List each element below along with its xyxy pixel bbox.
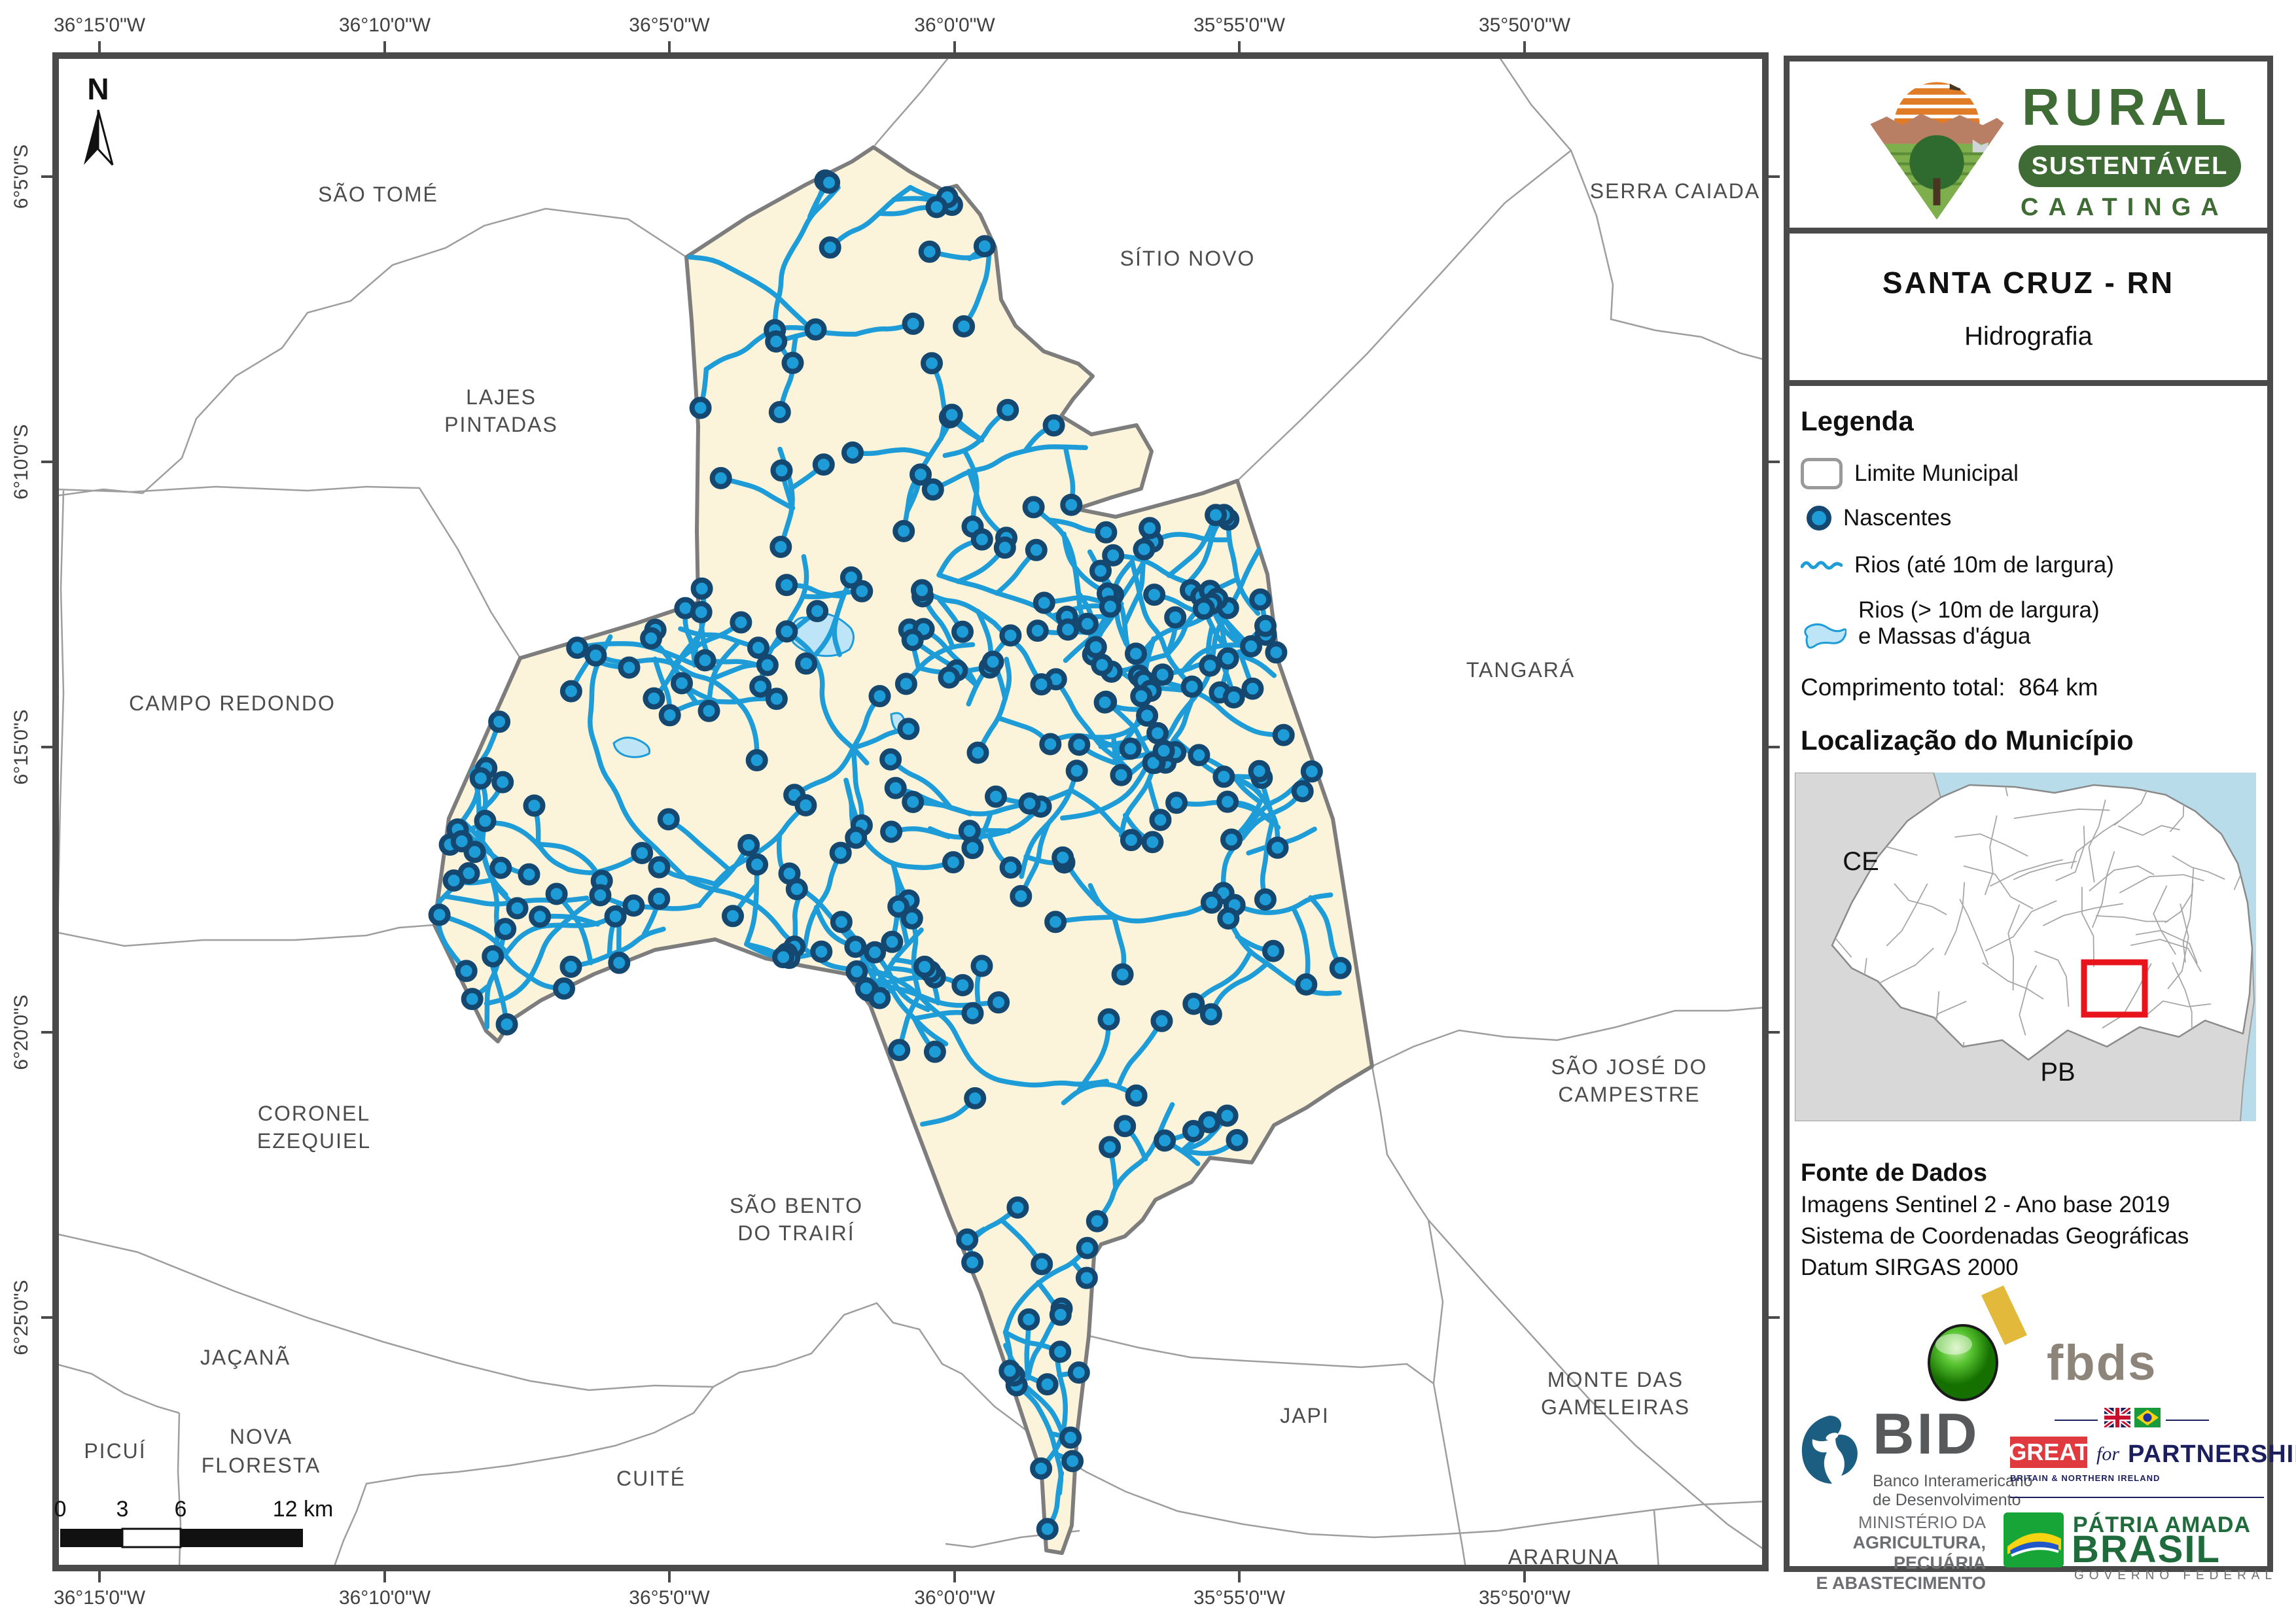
spring-dot <box>976 237 993 254</box>
logo-sustentavel-badge: SUSTENTÁVEL <box>2019 145 2241 187</box>
legend-item-label: Rios (> 10m de largura) <box>1858 597 2100 623</box>
spring-dot <box>1226 689 1243 706</box>
ministry-block: MINISTÉRIO DA AGRICULTURA, PECUÁRIA E AB… <box>1812 1512 1986 1594</box>
page: SÃO TOMÉSÍTIO NOVOSERRA CAIADALAJESPINTA… <box>0 0 2296 1623</box>
spring-dot <box>569 639 586 656</box>
spring-dot <box>964 1254 981 1271</box>
spring-dot <box>556 980 573 997</box>
legend-header: Legenda <box>1801 406 1914 437</box>
spring-dot <box>1219 1108 1236 1125</box>
great-subtext: BRITAIN & NORTHERN IRELAND <box>2010 1473 2160 1483</box>
spring-dot <box>1144 833 1161 850</box>
spring-dot <box>970 744 987 761</box>
spring-dot <box>788 881 805 898</box>
spring-dot <box>1127 645 1144 662</box>
legend-item-nascentes: Nascentes <box>1801 505 1951 531</box>
spring-dot <box>1101 1139 1118 1156</box>
nascentes-icon <box>1807 506 1831 531</box>
spring-dot <box>1133 688 1150 705</box>
spring-dot <box>1149 725 1166 742</box>
spring-dot <box>882 751 899 768</box>
spring-dot <box>1097 524 1114 541</box>
longitude-label-bottom: 35°50'0"W <box>1479 1587 1571 1609</box>
spring-dot <box>1167 609 1184 626</box>
brasil-government-flag-icon <box>2004 1512 2064 1567</box>
spring-dot <box>1207 506 1224 523</box>
spring-dot <box>944 406 961 423</box>
spring-dot <box>1251 763 1268 780</box>
spring-dot <box>1195 600 1212 617</box>
spring-dot <box>928 199 945 216</box>
spring-dot <box>813 943 830 960</box>
location-header: Localização do Município <box>1801 725 2134 756</box>
spring-dot <box>1219 794 1236 811</box>
spring-dot <box>693 604 710 621</box>
spring-dot <box>1039 1376 1056 1393</box>
water-mass-icon <box>1801 592 1846 655</box>
municipality-label: SÃO TOMÉ <box>318 183 438 206</box>
spring-dot <box>1029 622 1046 639</box>
spring-dot <box>974 531 991 548</box>
spring-dot <box>847 938 864 955</box>
total-length-label: Comprimento total: <box>1801 674 2005 701</box>
spring-dot <box>497 920 514 937</box>
spring-dot <box>1070 1364 1087 1381</box>
spring-dot <box>521 866 538 883</box>
spring-dot <box>1303 763 1320 780</box>
spring-dot <box>887 780 904 797</box>
spring-dot <box>645 690 662 707</box>
spring-dot <box>1190 746 1207 763</box>
brasil-text: BRASIL <box>2072 1533 2221 1565</box>
spring-dot <box>1002 627 1019 644</box>
spring-dot <box>1051 1343 1069 1360</box>
spring-dot <box>891 1041 908 1058</box>
spring-dot <box>1020 1311 1037 1328</box>
inset-ce-label: CE <box>1843 847 1879 876</box>
spring-dot <box>872 688 889 705</box>
spring-dot <box>732 614 749 631</box>
ministry-line: AGRICULTURA, PECUÁRIA <box>1812 1533 1986 1573</box>
bid-logo-text: BID <box>1873 1408 1980 1459</box>
spring-dot <box>1116 1117 1133 1134</box>
spring-dot <box>768 690 785 707</box>
spring-dot <box>472 770 489 787</box>
state-locator-inset-map: CEPB <box>1795 773 2256 1121</box>
spring-dot <box>431 906 448 923</box>
spring-dot <box>1102 598 1119 615</box>
spring-dot <box>848 963 865 980</box>
spring-dot <box>1168 794 1185 811</box>
spring-dot <box>492 860 509 877</box>
spring-dot <box>809 602 826 620</box>
governo-federal-text: GOVERNO FEDERAL <box>2074 1569 2277 1583</box>
spring-dot <box>797 797 814 814</box>
legend-item-rios: Rios (até 10m de largura) <box>1801 552 2114 578</box>
spring-dot <box>633 845 650 862</box>
spring-dot <box>941 669 958 686</box>
scale-label: 12 km <box>273 1497 334 1522</box>
spring-dot <box>1087 638 1104 655</box>
spring-dot <box>464 990 481 1007</box>
fbds-logo-icon <box>1924 1279 2041 1410</box>
great-flag-line-right <box>2166 1420 2209 1421</box>
spring-dot <box>997 539 1014 556</box>
spring-dot <box>1101 1011 1118 1028</box>
spring-dot <box>1128 1087 1145 1104</box>
spring-dot <box>904 794 921 811</box>
spring-dot <box>1025 498 1042 515</box>
longitude-label-bottom: 36°15'0"W <box>54 1587 146 1609</box>
spring-dot <box>1033 1460 1050 1477</box>
latitude-label-left: 6°5'0"S <box>10 145 32 209</box>
spring-dot <box>610 954 627 971</box>
spring-dot <box>484 948 501 965</box>
spring-dot <box>1201 657 1218 674</box>
source-header: Fonte de Dados <box>1801 1159 1987 1187</box>
spring-dot <box>1036 595 1053 612</box>
spring-dot <box>961 822 978 839</box>
spring-dot <box>990 994 1007 1011</box>
spring-dot <box>772 538 789 555</box>
spring-dot <box>1294 783 1311 800</box>
spring-dot <box>1267 644 1284 661</box>
spring-dot <box>1156 1132 1173 1149</box>
bid-name: Banco Interamericano de Desenvolvimento <box>1873 1472 2033 1510</box>
spring-dot <box>853 583 870 600</box>
spring-dot <box>477 812 494 829</box>
total-length-row: Comprimento total: 864 km <box>1801 674 2098 701</box>
spring-dot <box>785 355 802 372</box>
spring-dot <box>1185 996 1202 1013</box>
spring-dot <box>1139 707 1156 724</box>
spring-dot <box>752 678 769 695</box>
spring-dot <box>1215 768 1232 785</box>
logo-rural-text: RURAL <box>2022 77 2231 137</box>
spring-dot <box>1136 541 1153 558</box>
spring-dot <box>494 774 511 791</box>
spring-dot <box>548 886 565 903</box>
scale-seg <box>122 1529 181 1547</box>
scale-seg <box>181 1529 303 1547</box>
spring-dot <box>945 854 962 871</box>
spring-dot <box>749 856 766 873</box>
inset-pb-label: PB <box>2040 1058 2075 1087</box>
spring-dot <box>921 243 938 260</box>
spring-dot <box>807 321 824 338</box>
spring-dot <box>1146 586 1163 603</box>
map-subtitle: Hidrografia <box>1793 322 2264 351</box>
spring-dot <box>1059 621 1076 638</box>
longitude-label-top: 35°50'0"W <box>1479 14 1571 36</box>
spring-dot <box>1201 1114 1218 1131</box>
spring-dot <box>673 674 690 691</box>
legend-item-limite: Limite Municipal <box>1801 458 2019 489</box>
spring-dot <box>999 402 1016 419</box>
spring-dot <box>1054 849 1071 866</box>
spring-dot <box>905 315 922 332</box>
spring-dot <box>1042 736 1059 753</box>
spring-dot <box>1229 1132 1246 1149</box>
spring-dot <box>895 523 912 540</box>
spring-dot <box>1265 943 1282 960</box>
spring-dot <box>531 908 548 925</box>
north-label: N <box>87 72 109 106</box>
spring-dot <box>453 833 470 850</box>
spring-dot <box>1079 1240 1096 1257</box>
spring-dot <box>1063 497 1080 514</box>
brazil-flag-icon <box>2134 1408 2161 1427</box>
spring-dot <box>844 444 861 461</box>
rural-sustentavel-caatinga-logo-icon <box>1865 71 2009 221</box>
spring-dot <box>1223 831 1240 848</box>
longitude-label-top: 36°15'0"W <box>54 14 146 36</box>
spring-dot <box>1113 767 1130 784</box>
spring-dot <box>1078 1270 1095 1287</box>
spring-dot <box>1001 1363 1018 1380</box>
spring-dot <box>866 944 883 961</box>
spring-dot <box>1156 742 1173 759</box>
spring-dot <box>923 355 940 372</box>
logo-caatinga-text: CAATINGA <box>2021 194 2229 222</box>
spring-dot <box>1257 891 1274 908</box>
map-municipality-title: SANTA CRUZ - RN <box>1793 265 2264 300</box>
spring-dot <box>650 859 667 876</box>
spring-dot <box>621 659 638 676</box>
longitude-label-top: 36°10'0"W <box>339 14 431 36</box>
spring-dot <box>446 872 463 889</box>
spring-dot <box>1047 913 1064 930</box>
bid-logo-icon <box>1798 1413 1863 1486</box>
spring-dot <box>1033 676 1050 693</box>
ministry-line: MINISTÉRIO DA <box>1812 1512 1986 1533</box>
spring-dot <box>662 707 679 724</box>
great-flag-line-left <box>2055 1420 2098 1421</box>
spring-dot <box>1089 1213 1106 1230</box>
spring-dot <box>1092 563 1109 580</box>
scale-label: 0 <box>54 1497 67 1522</box>
source-line: Datum SIRGAS 2000 <box>1801 1255 2019 1281</box>
longitude-label-bottom: 36°5'0"W <box>629 1587 710 1609</box>
scale-label: 3 <box>116 1497 129 1522</box>
spring-dot <box>925 481 942 498</box>
great-logo-box: GREAT <box>2010 1437 2087 1468</box>
spring-dot <box>592 887 609 904</box>
spring-dot <box>916 958 933 975</box>
spring-dot <box>1269 839 1286 856</box>
spring-dot <box>1203 894 1220 911</box>
longitude-label-top: 35°55'0"W <box>1193 14 1286 36</box>
spring-dot <box>898 675 915 692</box>
spring-dot <box>701 703 718 720</box>
longitude-label-bottom: 35°55'0"W <box>1193 1587 1286 1609</box>
longitude-label-top: 36°5'0"W <box>629 14 710 36</box>
spring-dot <box>954 623 971 640</box>
spring-dot <box>1275 727 1292 744</box>
uk-flag-icon <box>2104 1408 2130 1427</box>
spring-dot <box>778 623 795 640</box>
title-panel <box>1784 228 2273 386</box>
spring-dot <box>832 845 849 862</box>
spring-dot <box>1332 960 1349 977</box>
scale-seg <box>60 1529 122 1547</box>
spring-dot <box>458 962 475 979</box>
spring-dot <box>964 1005 981 1022</box>
latitude-label-left: 6°20'0"S <box>10 994 32 1070</box>
spring-dot <box>900 720 917 737</box>
spring-dot <box>959 1231 976 1248</box>
spring-dot <box>954 977 971 994</box>
bid-name-line2: de Desenvolvimento <box>1873 1491 2033 1510</box>
spring-dot <box>1141 519 1158 536</box>
spring-dot <box>759 657 776 674</box>
spring-dot <box>815 456 832 473</box>
spring-dot <box>964 839 981 856</box>
spring-dot <box>833 913 850 930</box>
spring-dot <box>771 404 788 421</box>
spring-dot <box>1220 910 1237 927</box>
municipality-label: CUITÉ <box>616 1467 686 1490</box>
source-line: Imagens Sentinel 2 - Ano base 2019 <box>1801 1192 2170 1218</box>
spring-dot <box>987 788 1004 805</box>
legend-item-massas: Rios (> 10m de largura) e Massas d'água <box>1801 592 2100 655</box>
spring-dot <box>713 470 730 487</box>
ministry-line: E ABASTECIMENTO <box>1812 1573 1986 1594</box>
spring-dot <box>1046 417 1063 434</box>
spring-dot <box>798 655 815 672</box>
spring-dot <box>1069 762 1086 779</box>
municipality-label: CAMPO REDONDO <box>129 691 336 715</box>
spring-dot <box>660 811 677 828</box>
spring-dot <box>1154 666 1171 683</box>
spring-dot <box>643 630 660 647</box>
spring-dot <box>509 899 526 916</box>
spring-dot <box>563 958 580 975</box>
total-length-value: 864 km <box>2019 674 2098 701</box>
spring-dot <box>871 990 888 1007</box>
spring-dot <box>904 631 921 648</box>
municipality-label: JAÇANÃ <box>200 1346 291 1369</box>
spring-dot <box>692 400 709 417</box>
spring-dot <box>1298 976 1315 993</box>
spring-dot <box>1104 547 1122 564</box>
spring-dot <box>1028 542 1045 559</box>
legend-item-label: Nascentes <box>1843 505 1951 531</box>
spring-dot <box>847 829 864 846</box>
spring-dot <box>1033 1255 1050 1272</box>
legend-item-label: Limite Municipal <box>1854 461 2019 487</box>
latitude-label-left: 6°15'0"S <box>10 709 32 784</box>
spring-dot <box>1012 888 1029 905</box>
spring-dot <box>607 908 624 925</box>
municipality-label: TANGARÁ <box>1466 658 1575 682</box>
spring-dot <box>1097 694 1114 711</box>
spring-dot <box>1064 1453 1081 1470</box>
spring-dot <box>1052 1306 1069 1323</box>
great-underline <box>2010 1497 2264 1498</box>
spring-dot <box>822 239 839 256</box>
bid-name-line1: Banco Interamericano <box>1873 1472 2033 1491</box>
spring-dot <box>694 580 711 597</box>
latitude-label-left: 6°25'0"S <box>10 1280 32 1355</box>
latitude-label-left: 6°10'0"S <box>10 424 32 499</box>
spring-dot <box>650 890 667 907</box>
spring-dot <box>1114 966 1131 983</box>
great-for-text: for <box>2096 1443 2119 1465</box>
spring-dot <box>927 1043 944 1060</box>
spring-dot <box>740 837 757 854</box>
spring-dot <box>913 582 930 599</box>
spring-dot <box>1252 591 1269 608</box>
longitude-label-bottom: 36°0'0"W <box>914 1587 995 1609</box>
spring-dot <box>491 713 508 730</box>
spring-dot <box>1009 1199 1026 1216</box>
spring-dot <box>1093 656 1110 673</box>
spring-dot <box>773 462 790 479</box>
spring-dot <box>499 1016 516 1033</box>
spring-dot <box>821 174 838 191</box>
longitude-label-bottom: 36°10'0"W <box>339 1587 431 1609</box>
spring-dot <box>697 652 714 669</box>
spring-dot <box>985 654 1002 671</box>
spring-dot <box>966 1090 983 1107</box>
municipality-label: JAPI <box>1280 1404 1330 1427</box>
limite-municipal-icon <box>1801 458 1843 489</box>
spring-dot <box>1062 1429 1079 1446</box>
legend-item-label: Rios (até 10m de largura) <box>1854 552 2114 578</box>
spring-dot <box>625 897 642 914</box>
spring-dot <box>1257 618 1274 635</box>
spring-dot <box>904 910 921 927</box>
spring-dot <box>883 824 900 841</box>
municipality-label: SERRA CAIADA <box>1590 179 1761 203</box>
legend-item-label2: e Massas d'água <box>1858 623 2100 650</box>
scale-label: 6 <box>175 1497 187 1522</box>
spring-dot <box>1203 1006 1220 1023</box>
spring-dot <box>1122 741 1139 758</box>
longitude-label-top: 36°0'0"W <box>914 14 995 36</box>
spring-dot <box>768 333 785 350</box>
spring-dot <box>1039 1520 1056 1537</box>
spring-dot <box>1152 811 1169 828</box>
spring-dot <box>749 752 766 769</box>
municipality-label: SÍTIO NOVO <box>1120 247 1256 270</box>
spring-dot <box>587 647 604 664</box>
spring-dot <box>778 576 795 593</box>
spring-dot <box>883 934 900 951</box>
spring-dot <box>1243 638 1260 655</box>
spring-dot <box>1123 831 1140 848</box>
spring-dot <box>1070 736 1087 753</box>
spring-dot <box>1184 678 1201 695</box>
spring-dot <box>724 907 741 924</box>
spring-dot <box>1002 859 1019 876</box>
municipality-label: PICUÍ <box>84 1439 146 1463</box>
spring-dot <box>974 958 991 975</box>
spring-dot <box>563 683 580 700</box>
great-partnership-text: PARTNERSHIP <box>2128 1440 2296 1469</box>
spring-dot <box>955 318 972 335</box>
spring-dot <box>1079 616 1096 633</box>
spring-dot <box>1220 650 1237 667</box>
spring-dot <box>526 797 543 814</box>
spring-dot <box>1021 795 1038 812</box>
spring-dot <box>1154 1013 1171 1030</box>
fbds-logo-text: fbds <box>2047 1335 2157 1391</box>
river-line-icon <box>1801 557 1843 573</box>
spring-dot <box>750 639 767 656</box>
source-line: Sistema de Coordenadas Geográficas <box>1801 1223 2189 1249</box>
